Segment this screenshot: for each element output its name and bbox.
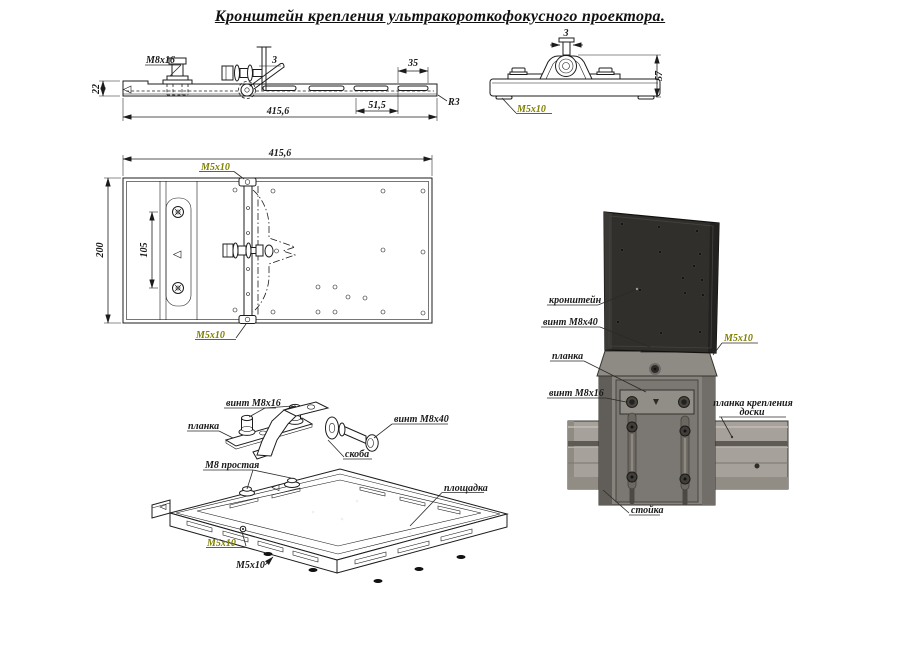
post-column: [597, 346, 717, 505]
dim-3-front: 3: [563, 28, 569, 39]
dim-200: 200: [95, 243, 106, 259]
dim-3: 3: [271, 55, 277, 66]
label-m8-prostaya: M8 простая: [204, 460, 259, 471]
label-skoba: скоба: [345, 449, 369, 460]
label-kronshtein: кронштейн: [549, 295, 602, 306]
dim-57: 57: [654, 70, 665, 81]
label-m8x16: M8x16: [145, 55, 175, 66]
dim-35: 35: [407, 58, 418, 69]
dim-22: 22: [91, 84, 102, 95]
assembly-3d-view: кронштейн винт M8x40 M5x10 планка винт M…: [541, 212, 793, 516]
side-view: 3 M8x16 22 35 51,5 415,6 R3: [91, 47, 460, 121]
front-view: 3 57 M5x10: [490, 28, 665, 115]
plan-bolt: [223, 243, 279, 258]
bracket-plate: [604, 212, 719, 353]
dim-415-6-side: 415,6: [266, 106, 290, 117]
label-vint-m8x40-assembly: винт M8x40: [543, 317, 598, 328]
screw-m8x40-exploded: [339, 423, 378, 451]
label-planka-assembly: планка: [552, 351, 583, 362]
drawing-canvas: 3 M8x16 22 35 51,5 415,6 R3: [0, 0, 900, 650]
strip-on-column: [620, 390, 694, 414]
label-r3: R3: [447, 97, 460, 108]
label-vint-m8x16-assembly: винт M8x16: [549, 388, 604, 399]
dim-105: 105: [139, 243, 150, 258]
dim-415-6-plan: 415,6: [268, 148, 292, 159]
label-vint-m8x40-exploded: винт M8x40: [394, 414, 449, 425]
label-m5x10-assembly: M5x10: [723, 333, 753, 344]
screw-m8x40-side: [222, 65, 262, 81]
plan-view: 105 415,6 200 M5x10 M5x10: [95, 148, 432, 341]
label-planka-exploded: планка: [188, 421, 219, 432]
label-m5x10-exploded-b: M5x10: [235, 560, 265, 571]
label-board-strip-line2: доски: [739, 407, 764, 418]
base-profile: [490, 79, 660, 96]
plate-outline: [123, 178, 432, 323]
dim-51-5: 51,5: [368, 100, 386, 111]
exploded-view: винт M8x16 планка винт M8x40 скоба M8 пр…: [152, 398, 507, 583]
drawing-sheet: Кронштейн крепления ультракороткофокусно…: [0, 0, 900, 650]
pivot-gable: [540, 38, 592, 79]
label-stoyka: стойка: [631, 505, 663, 516]
